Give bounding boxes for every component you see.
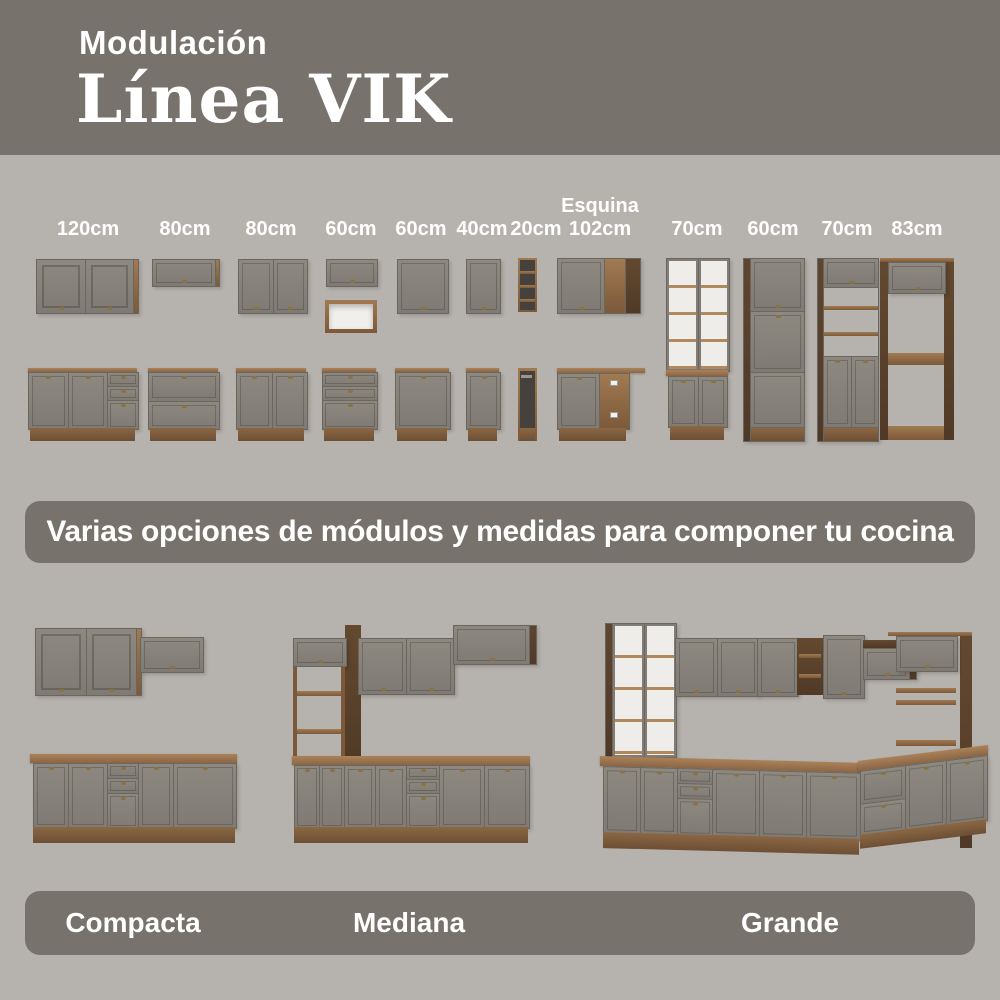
- wood-side-panel: [880, 258, 888, 440]
- rail: [521, 375, 532, 378]
- toe-kick: [294, 827, 528, 843]
- shelf: [520, 271, 535, 274]
- wall-cabinet-40: [466, 259, 501, 314]
- flip-door: [294, 639, 346, 666]
- wall-cabinet-80: [238, 259, 308, 314]
- cabinet-door: [906, 761, 946, 830]
- drawer: [108, 764, 138, 778]
- base-cabinet-120: [28, 368, 137, 441]
- shelf: [824, 332, 878, 336]
- toe-kick: [468, 428, 497, 441]
- toe-kick: [238, 428, 304, 441]
- cabinet-door: [760, 771, 806, 838]
- module-label-80cm-a: 80cm: [135, 218, 235, 241]
- cabinet-door: [718, 639, 759, 696]
- open-section: [824, 288, 878, 356]
- flip-door: [327, 260, 377, 286]
- cabinet-door: [558, 259, 604, 313]
- drawer: [678, 769, 712, 784]
- base-cabinet-40: [466, 368, 499, 441]
- flip-door: [153, 260, 215, 286]
- cabinet-door: [273, 373, 308, 429]
- cabinet-door: [237, 373, 272, 429]
- cabinet-door: [29, 373, 68, 429]
- drawer: [407, 766, 439, 779]
- tall-glass-tower: [605, 623, 677, 758]
- hinge: [610, 412, 618, 418]
- base-run-left: [600, 756, 862, 855]
- cabinet-door: [467, 260, 500, 313]
- drawer-stack: [861, 766, 905, 835]
- module-label-120cm: 120cm: [38, 218, 138, 241]
- base-fronts: [33, 763, 237, 829]
- wall-cabinet: [757, 638, 799, 697]
- cabinet-door: [359, 639, 406, 694]
- toe-kick: [824, 428, 878, 441]
- cabinet-door: [86, 260, 134, 313]
- base-drawers-80: [148, 368, 218, 441]
- cabinet-door: [239, 260, 273, 313]
- kitchen-compacta: [30, 620, 240, 845]
- flip-section: [888, 262, 946, 294]
- shelf: [896, 688, 956, 693]
- cabinet-door: [34, 764, 68, 828]
- toe-kick: [670, 426, 724, 440]
- toe-kick: [520, 428, 535, 441]
- lower-doors: [668, 376, 728, 428]
- wood-corner-side: [626, 259, 640, 313]
- cabinet-door: [713, 770, 759, 837]
- cabinet-door: [407, 639, 454, 694]
- wall-cabinet-60: [397, 259, 449, 314]
- kitchen-label-grande: Grande: [710, 891, 870, 955]
- lower-doors: [824, 357, 878, 427]
- glass-door: [667, 259, 698, 371]
- wood-side-panel: [134, 260, 138, 313]
- tower-open-shelves: [293, 667, 345, 756]
- glass-door: [613, 624, 644, 757]
- drawer: [149, 402, 219, 430]
- cabinet-door: [376, 766, 406, 828]
- cabinet-door: [467, 373, 500, 429]
- drawer-stack: [108, 373, 138, 429]
- bottom-band: [888, 426, 944, 440]
- wood-side-panel: [606, 624, 612, 757]
- countertop: [292, 756, 530, 765]
- drawer: [407, 780, 439, 793]
- cabinet-door: [345, 766, 375, 828]
- shelf: [799, 674, 821, 678]
- folding-wood-panel: [600, 374, 629, 429]
- cabinet-door: [174, 764, 236, 828]
- drawer: [323, 401, 377, 429]
- open-niche-60: [325, 300, 377, 333]
- header-kicker: Modulación: [79, 24, 267, 62]
- wall-cabinet: [35, 628, 142, 696]
- drawer: [678, 799, 712, 836]
- cabinet-door: [947, 756, 987, 825]
- cabinet-door: [37, 260, 85, 313]
- shelf: [297, 691, 341, 696]
- tall-pantry-cabinet-60: [743, 258, 805, 442]
- base-drawers-60: [322, 368, 376, 441]
- middle-banner: Varias opciones de módulos y medidas par…: [25, 501, 975, 563]
- wall-flip-cabinet: [453, 625, 537, 665]
- cabinet-door: [558, 374, 599, 429]
- open-interior: [520, 371, 535, 428]
- drawer: [108, 779, 138, 793]
- cabinet-door: [699, 377, 728, 427]
- glass-doors: [666, 258, 730, 372]
- cabinet-door: [485, 766, 529, 828]
- wall-flip-cabinet-80: [152, 259, 220, 287]
- cabinet-door: [824, 636, 864, 698]
- wall-cabinet: [358, 638, 455, 695]
- cabinet-door: [320, 766, 344, 828]
- glass-door: [645, 624, 676, 757]
- drawer: [108, 401, 138, 429]
- promo-page: Modulación Línea VIK 120cm 80cm 80cm 60c…: [0, 0, 1000, 1000]
- module-label-esquina: Esquina 102cm: [550, 195, 650, 241]
- countertop: [30, 754, 237, 763]
- shelf-band: [888, 353, 944, 365]
- cabinet-door: [604, 767, 640, 834]
- flip-section: [896, 636, 958, 672]
- drawer: [108, 387, 138, 400]
- cabinet-door: [69, 373, 108, 429]
- cabinet-door: [69, 764, 107, 828]
- shelf: [824, 306, 878, 310]
- tall-oven-tower-83: [880, 258, 954, 440]
- fronts: [148, 372, 220, 430]
- header-banner: Modulación Línea VIK: [0, 0, 1000, 155]
- fronts: [322, 372, 378, 430]
- fronts: [557, 373, 630, 430]
- drawer: [323, 387, 377, 400]
- tall-glass-cabinet-70: [666, 258, 728, 440]
- shelf: [896, 700, 956, 705]
- cabinet-door: [398, 260, 448, 313]
- cabinet-door: [751, 259, 804, 311]
- open-shelf-20-wall: [518, 258, 537, 312]
- page-title: Línea VIK: [76, 60, 452, 138]
- toe-kick: [559, 428, 626, 441]
- drawer: [407, 794, 439, 828]
- niche-interior: [329, 304, 373, 329]
- wood-side-panel: [744, 259, 750, 441]
- toe-kick: [397, 428, 447, 441]
- base-fronts: [294, 765, 530, 829]
- toe-kick: [324, 428, 374, 441]
- toe-kick: [150, 428, 216, 441]
- fronts: [236, 372, 308, 430]
- drawer-stack: [678, 769, 712, 836]
- cabinet-door: [807, 772, 860, 839]
- flip-door: [141, 638, 203, 672]
- drawer: [678, 784, 712, 799]
- module-label-esquina-top: Esquina: [561, 195, 639, 217]
- kitchen-label-mediana: Mediana: [329, 891, 489, 955]
- open-base-20: [518, 368, 537, 441]
- tall-open-tower-70: [817, 258, 879, 442]
- module-label-83cm: 83cm: [867, 218, 967, 241]
- flip-door: [454, 626, 529, 664]
- cabinet-door: [676, 639, 717, 696]
- middle-banner-text: Varias opciones de módulos y medidas par…: [25, 501, 975, 563]
- cabinet-door: [824, 357, 851, 427]
- wall-cabinet-120: [36, 259, 139, 314]
- shelf: [520, 299, 535, 302]
- corner-wall-cabinet-102: [557, 258, 641, 314]
- base-cabinet-60: [395, 368, 449, 441]
- shelf: [896, 740, 956, 746]
- cabinet-door: [669, 377, 698, 427]
- cabinet-door: [87, 629, 137, 695]
- wood-corner-face: [605, 259, 625, 313]
- glass-door: [699, 259, 730, 371]
- base-cabinet-80: [236, 368, 306, 441]
- kitchen-grande: [600, 615, 990, 860]
- shelf: [297, 729, 341, 734]
- cabinet-door: [641, 768, 677, 835]
- cabinet-door: [295, 766, 319, 828]
- drawer: [149, 373, 219, 401]
- cabinet-door: [852, 357, 879, 427]
- wood-side-panel: [216, 260, 219, 286]
- kitchen-mediana: [292, 615, 532, 845]
- wall-cabinet: [675, 638, 759, 697]
- drawer-stack: [108, 764, 138, 828]
- toe-kick: [30, 428, 135, 441]
- shelf: [520, 285, 535, 288]
- module-label-esquina-size: 102cm: [569, 218, 631, 240]
- flip-door: [897, 637, 957, 671]
- cabinet-door: [36, 629, 86, 695]
- hinge: [610, 380, 618, 386]
- fronts: [466, 372, 501, 430]
- cabinet-door: [758, 639, 798, 696]
- shelf-interior: [520, 260, 535, 310]
- drawer: [861, 766, 905, 803]
- flip-door: [889, 263, 945, 293]
- wall-flip-cabinet: [140, 637, 204, 673]
- cabinet-door: [139, 764, 173, 828]
- kitchen-label-compacta: Compacta: [53, 891, 213, 955]
- base-run-right: [858, 745, 988, 851]
- shelf: [799, 654, 821, 658]
- wood-side-panel: [818, 259, 823, 441]
- corner-base-cabinet-102: [557, 368, 645, 441]
- corner-wall-cabinet: [823, 635, 865, 699]
- base-fronts: [603, 766, 861, 841]
- bottom-banner: Compacta Mediana Grande: [25, 891, 975, 955]
- fronts: [395, 372, 451, 430]
- tower-flip-door: [293, 638, 347, 667]
- drawer: [323, 373, 377, 386]
- cabinet-door: [751, 373, 804, 427]
- corner-open-shelf: [797, 638, 823, 695]
- wall-flip-cabinet-60: [326, 259, 378, 287]
- flip-door: [824, 259, 878, 287]
- cabinet-door: [751, 312, 804, 372]
- toe-kick: [751, 428, 804, 441]
- drawer-stack: [407, 766, 439, 828]
- drawer: [108, 794, 138, 828]
- fronts: [28, 372, 139, 430]
- wood-side-panel: [530, 626, 536, 664]
- toe-kick: [33, 827, 235, 843]
- cabinet-door: [396, 373, 450, 429]
- drawer: [108, 373, 138, 386]
- cabinet-door: [274, 260, 308, 313]
- cabinet-door: [440, 766, 484, 828]
